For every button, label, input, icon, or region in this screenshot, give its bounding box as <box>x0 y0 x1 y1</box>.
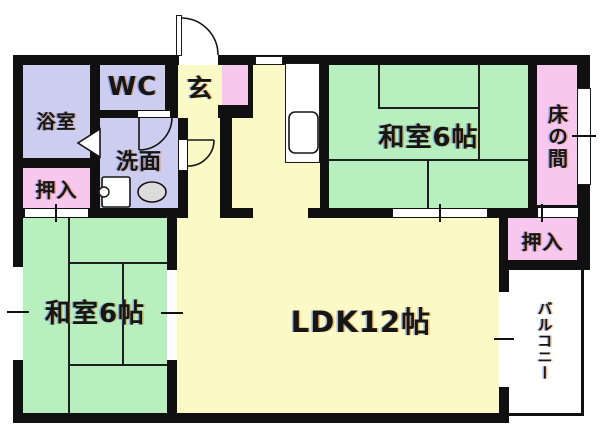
label-tokonoma: 床の間 <box>537 68 577 205</box>
kitchen-sink <box>289 112 318 153</box>
entrance-door-arc <box>182 18 218 55</box>
bath-folding-door <box>78 129 100 157</box>
label-washitsu-right: 和室6帖 <box>329 120 528 150</box>
label-genkan: 玄 <box>178 72 222 102</box>
label-balcony: バルコニー <box>509 272 581 410</box>
drain-circle <box>99 187 109 197</box>
label-closet-left: 押入 <box>23 176 90 200</box>
washbasin <box>138 182 166 202</box>
floor-plan: 浴室 WC 玄 洗面 押入 和室6帖 床の間 押入 和室6帖 LDK12帖 バル… <box>0 0 600 428</box>
washroom-door-arc <box>188 140 214 166</box>
label-wc: WC <box>100 70 165 104</box>
label-washitsu-left: 和室6帖 <box>23 296 167 326</box>
label-washroom: 洗面 <box>100 146 178 174</box>
label-bath: 浴室 <box>23 108 90 132</box>
label-closet-right: 押入 <box>508 228 577 252</box>
label-ldk: LDK12帖 <box>200 304 522 336</box>
